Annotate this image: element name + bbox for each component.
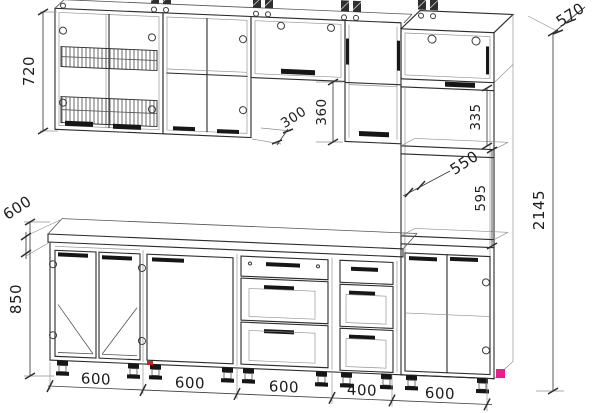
hinge-icon (240, 36, 247, 43)
bottom-dimension-chain: 600 600 600 400 600 (47, 360, 492, 412)
wall-cabinet-narrow (345, 20, 401, 143)
drawer-box (249, 330, 315, 363)
drawer-handle (351, 267, 378, 272)
hinge-icon (240, 107, 247, 114)
base-cabinet-two-door (50, 246, 146, 360)
foot-icon (56, 360, 69, 376)
base-module-width-label: 400 (347, 381, 377, 400)
side-handle (346, 39, 349, 65)
dim-base-height-label: 850 (7, 284, 25, 314)
dish-rack-upper (61, 47, 157, 71)
door-handle (409, 256, 437, 261)
drawer-box (249, 288, 315, 319)
tall-column-body (401, 60, 513, 380)
red-marker (147, 361, 153, 365)
dim-wall-height: 720 (20, 9, 58, 134)
wall-cabinet-flipup (251, 17, 345, 82)
dim-worktop-depth-label: 600 (0, 192, 35, 224)
base-module-width-label: 600 (269, 377, 299, 396)
knob-icon (317, 265, 320, 268)
wall-cabinet-dishrack (55, 8, 163, 134)
dim-wall-depth: 300 (252, 104, 310, 145)
dim-open-shelf: 335 (468, 85, 492, 149)
door-handle (450, 257, 478, 262)
base-cabinet-appliance-door (147, 254, 233, 364)
shelf-handle (445, 82, 475, 88)
side-handle (397, 41, 400, 71)
hinge-icon (149, 34, 156, 41)
drawer-box (346, 339, 386, 369)
hinge-icon (483, 279, 490, 286)
dim-oven-niche-label: 595 (473, 184, 489, 211)
base-module-width-label: 600 (425, 384, 455, 403)
wall-cabinet-two-door (163, 13, 251, 138)
kitchen-technical-drawing: 600 600 600 400 600 720 600 850 (0, 0, 600, 413)
door-handle (217, 129, 239, 134)
dim-wall-height-label: 720 (20, 56, 38, 86)
hinge-icon (472, 37, 480, 45)
drawing-svg: 600 600 600 400 600 720 600 850 (0, 0, 600, 413)
knob-icon (249, 262, 252, 265)
base-cabinet-drawers-400 (340, 260, 393, 372)
wall-brackets (60, 0, 438, 24)
hinge-icon (60, 27, 67, 34)
dim-open-shelf-label: 335 (468, 103, 484, 130)
dim-base-height: 850 (7, 219, 54, 379)
dim-total-height: 2145 570 (528, 0, 588, 394)
hinge-icon (328, 24, 335, 31)
dim-flip-clearance: 360 (314, 79, 343, 145)
door-handle (359, 131, 389, 137)
hinge-icon (428, 35, 436, 43)
dim-top-cabinet-depth-label: 570 (553, 0, 588, 31)
worktop (48, 218, 417, 257)
door-handle (281, 69, 315, 75)
bracket-icon (60, 0, 68, 8)
dim-worktop-gap-label: 550 (447, 147, 482, 179)
dim-flip-clearance-label: 360 (314, 98, 330, 125)
door-handle (102, 255, 132, 260)
door-handle (58, 252, 88, 257)
base-module-width-label: 600 (81, 369, 111, 388)
base-module-width-label: 600 (175, 373, 205, 392)
tall-column-top-cabinet (401, 10, 513, 92)
door-handle (486, 46, 489, 74)
base-cabinet-drawers-600 (241, 256, 328, 368)
hinge-icon (483, 347, 490, 354)
dim-wall-depth-label: 300 (278, 104, 310, 132)
dim-total-height-label: 2145 (530, 190, 548, 230)
magenta-marker (496, 369, 505, 378)
door-handle (152, 257, 184, 262)
drawer-box (346, 295, 386, 325)
cabinet-linework: 600 600 600 400 600 (47, 0, 513, 413)
drawer-handle (266, 262, 300, 267)
hinge-icon (278, 22, 285, 29)
